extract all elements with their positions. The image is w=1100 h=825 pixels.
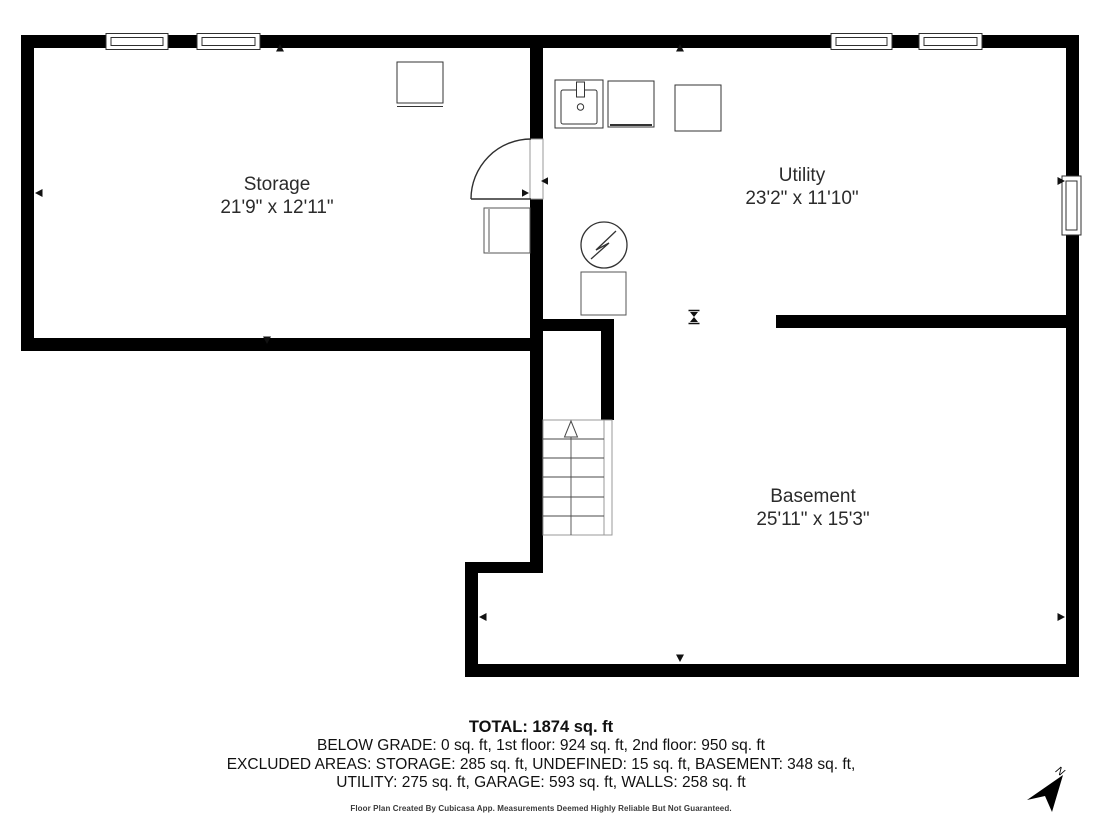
marker-door-a [522, 189, 529, 197]
floor-plan-drawing: N [0, 0, 1100, 825]
wall-stairwell-top [543, 319, 610, 331]
door-swing-icon [471, 139, 543, 199]
measurement-markers [35, 44, 1065, 662]
floor-plan-canvas: N Storage 21'9" x 12'11" Utility 23'2" x… [0, 0, 1100, 825]
wall-center-lower [530, 199, 543, 573]
window-utility-right [1062, 176, 1081, 235]
room-name: Utility [745, 164, 858, 187]
room-label-utility: Utility 23'2" x 11'10" [745, 164, 858, 210]
room-dimensions: 23'2" x 11'10" [745, 187, 858, 210]
summary-total: TOTAL: 1874 sq. ft [0, 717, 1091, 737]
marker-opening-bowtie [689, 311, 700, 324]
room-label-basement: Basement 25'11" x 15'3" [756, 485, 869, 531]
water-heater-circle-bolt-icon [581, 222, 627, 268]
wall-utility-basement-divider [776, 315, 1066, 328]
marker-basement-right [1058, 613, 1066, 621]
wall-right [1066, 35, 1079, 677]
wall-left [21, 35, 34, 351]
window-storage-1 [106, 34, 168, 50]
wall-basement-bottom [465, 664, 1079, 677]
marker-basement-left [479, 613, 487, 621]
room-dimensions: 25'11" x 15'3" [756, 508, 869, 531]
room-name: Basement [756, 485, 869, 508]
room-dimensions: 21'9" x 12'11" [220, 196, 333, 219]
utility-cabinet-3 [581, 272, 626, 315]
staircase-up-arrow-icon [543, 420, 612, 535]
sink-icon [555, 80, 603, 128]
disclaimer-text: Floor Plan Created By Cubicasa App. Meas… [0, 804, 1091, 813]
marker-basement-bottom [676, 655, 684, 663]
room-name: Storage [220, 173, 333, 196]
door-jamb [530, 139, 543, 199]
utility-cabinet-2 [675, 85, 721, 131]
utility-cabinet-1 [608, 81, 654, 127]
door-side-cabinet [484, 208, 530, 253]
summary-grade-line: BELOW GRADE: 0 sq. ft, 1st floor: 924 sq… [0, 737, 1091, 756]
wall-center-upper [530, 47, 543, 139]
summary-excluded-line-2: UTILITY: 275 sq. ft, GARAGE: 593 sq. ft,… [0, 774, 1091, 793]
marker-left-storage [35, 189, 43, 197]
wall-storage-bottom [21, 338, 530, 351]
walls [21, 35, 1079, 677]
storage-cabinet [397, 62, 443, 107]
wall-basement-left [465, 562, 478, 677]
summary-excluded-line-1: EXCLUDED AREAS: STORAGE: 285 sq. ft, UND… [0, 756, 1091, 775]
window-storage-2 [197, 34, 260, 50]
window-utility-1 [831, 34, 892, 50]
room-label-storage: Storage 21'9" x 12'11" [220, 173, 333, 219]
window-utility-2 [919, 34, 982, 50]
wall-stairwell-right [601, 319, 614, 420]
area-summary: TOTAL: 1874 sq. ft BELOW GRADE: 0 sq. ft… [0, 717, 1091, 813]
wall-basement-notch [465, 562, 538, 573]
